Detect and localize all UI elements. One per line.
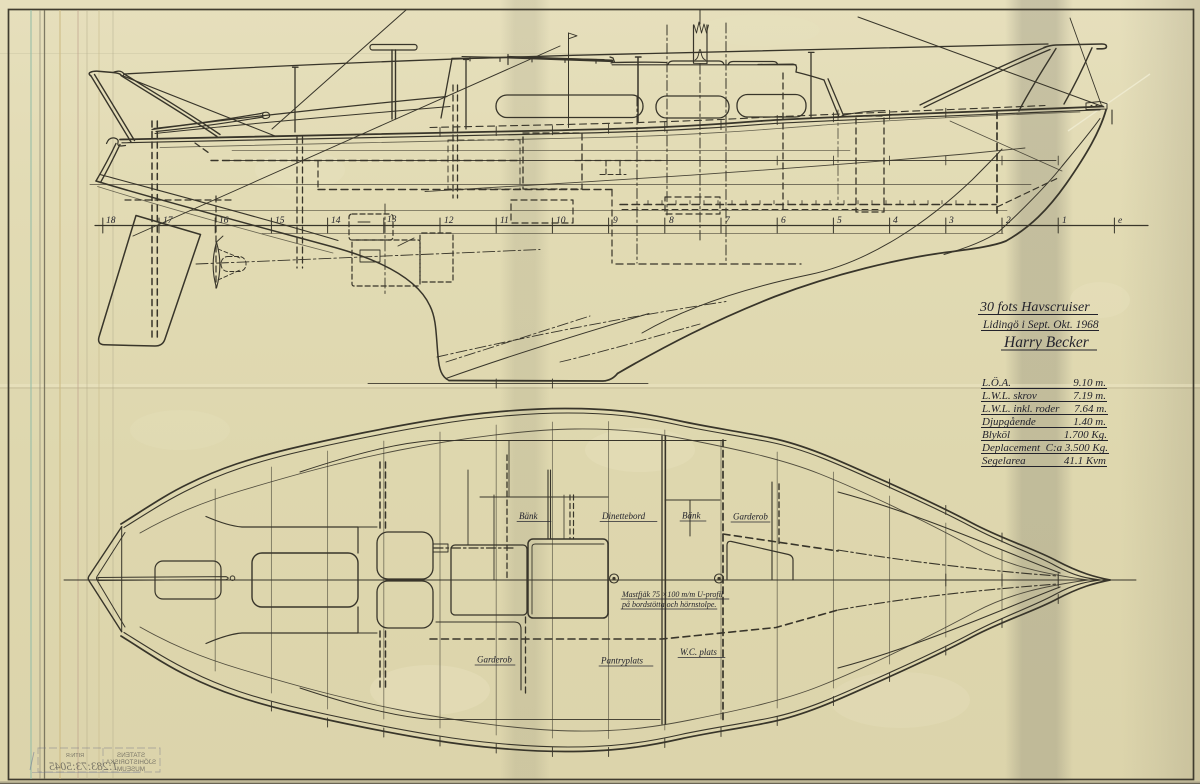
svg-text:Dinettebord: Dinettebord [601, 511, 646, 521]
svg-text:L.W.L. inkl. roder: L.W.L. inkl. roder [981, 403, 1060, 415]
svg-text:4: 4 [893, 216, 898, 226]
svg-text:10: 10 [556, 216, 566, 226]
svg-text:Segelarea: Segelarea [982, 455, 1026, 467]
svg-text:Mastfjäk 75 ×100 m/m U-profil: Mastfjäk 75 ×100 m/m U-profil [621, 590, 724, 599]
svg-text:1: 1 [1062, 216, 1067, 226]
svg-text:9.10 m.: 9.10 m. [1073, 377, 1106, 389]
svg-text:1.40 m.: 1.40 m. [1073, 416, 1106, 428]
svg-text:1.700 Kg.: 1.700 Kg. [1064, 429, 1107, 441]
svg-text:Harry Becker: Harry Becker [1003, 334, 1090, 351]
svg-text:W.C. plats: W.C. plats [680, 647, 717, 657]
svg-text:41.1 Kvm: 41.1 Kvm [1064, 455, 1106, 467]
svg-text:7.64 m.: 7.64 m. [1074, 403, 1107, 415]
svg-text:Garderob: Garderob [733, 512, 768, 522]
svg-text:Bänk: Bänk [519, 511, 538, 521]
svg-text:14: 14 [331, 216, 341, 226]
svg-text:9: 9 [613, 216, 618, 226]
svg-text:7.19 m.: 7.19 m. [1073, 390, 1106, 402]
svg-text:18: 18 [106, 216, 116, 226]
svg-text:6: 6 [781, 216, 786, 226]
svg-text:5: 5 [837, 216, 842, 226]
svg-text:13: 13 [387, 215, 397, 225]
svg-text:C:a 3.500 Kg.: C:a 3.500 Kg. [1046, 442, 1108, 454]
svg-text:Garderob: Garderob [477, 655, 512, 665]
svg-text:Bänk: Bänk [682, 511, 701, 521]
svg-text:STATENS: STATENS [117, 752, 145, 759]
svg-text:8: 8 [669, 216, 674, 226]
svg-text:Djupgående: Djupgående [981, 416, 1036, 428]
svg-text:30 fots Havscruiser: 30 fots Havscruiser [979, 300, 1090, 315]
svg-text:Deplacement: Deplacement [981, 442, 1041, 454]
svg-text:3: 3 [948, 216, 954, 226]
svg-text:1:283:73:5045: 1:283:73:5045 [49, 761, 118, 773]
svg-text:Lidingö i Sept. Okt. 1968: Lidingö i Sept. Okt. 1968 [982, 319, 1099, 331]
svg-text:MUSEUM: MUSEUM [117, 766, 145, 773]
svg-text:Blyköl: Blyköl [982, 429, 1010, 441]
svg-text:RITN:R: RITN:R [66, 753, 84, 759]
svg-text:på bordstötta och hörnstolpe.: på bordstötta och hörnstolpe. [621, 600, 716, 609]
svg-text:Pantryplats: Pantryplats [600, 656, 643, 666]
svg-text:11: 11 [500, 216, 509, 226]
svg-text:12: 12 [444, 216, 454, 226]
svg-text:L.W.L. skrov: L.W.L. skrov [981, 390, 1037, 402]
svg-text:L.Ö.A.: L.Ö.A. [981, 377, 1011, 389]
svg-text:e: e [1118, 216, 1122, 226]
